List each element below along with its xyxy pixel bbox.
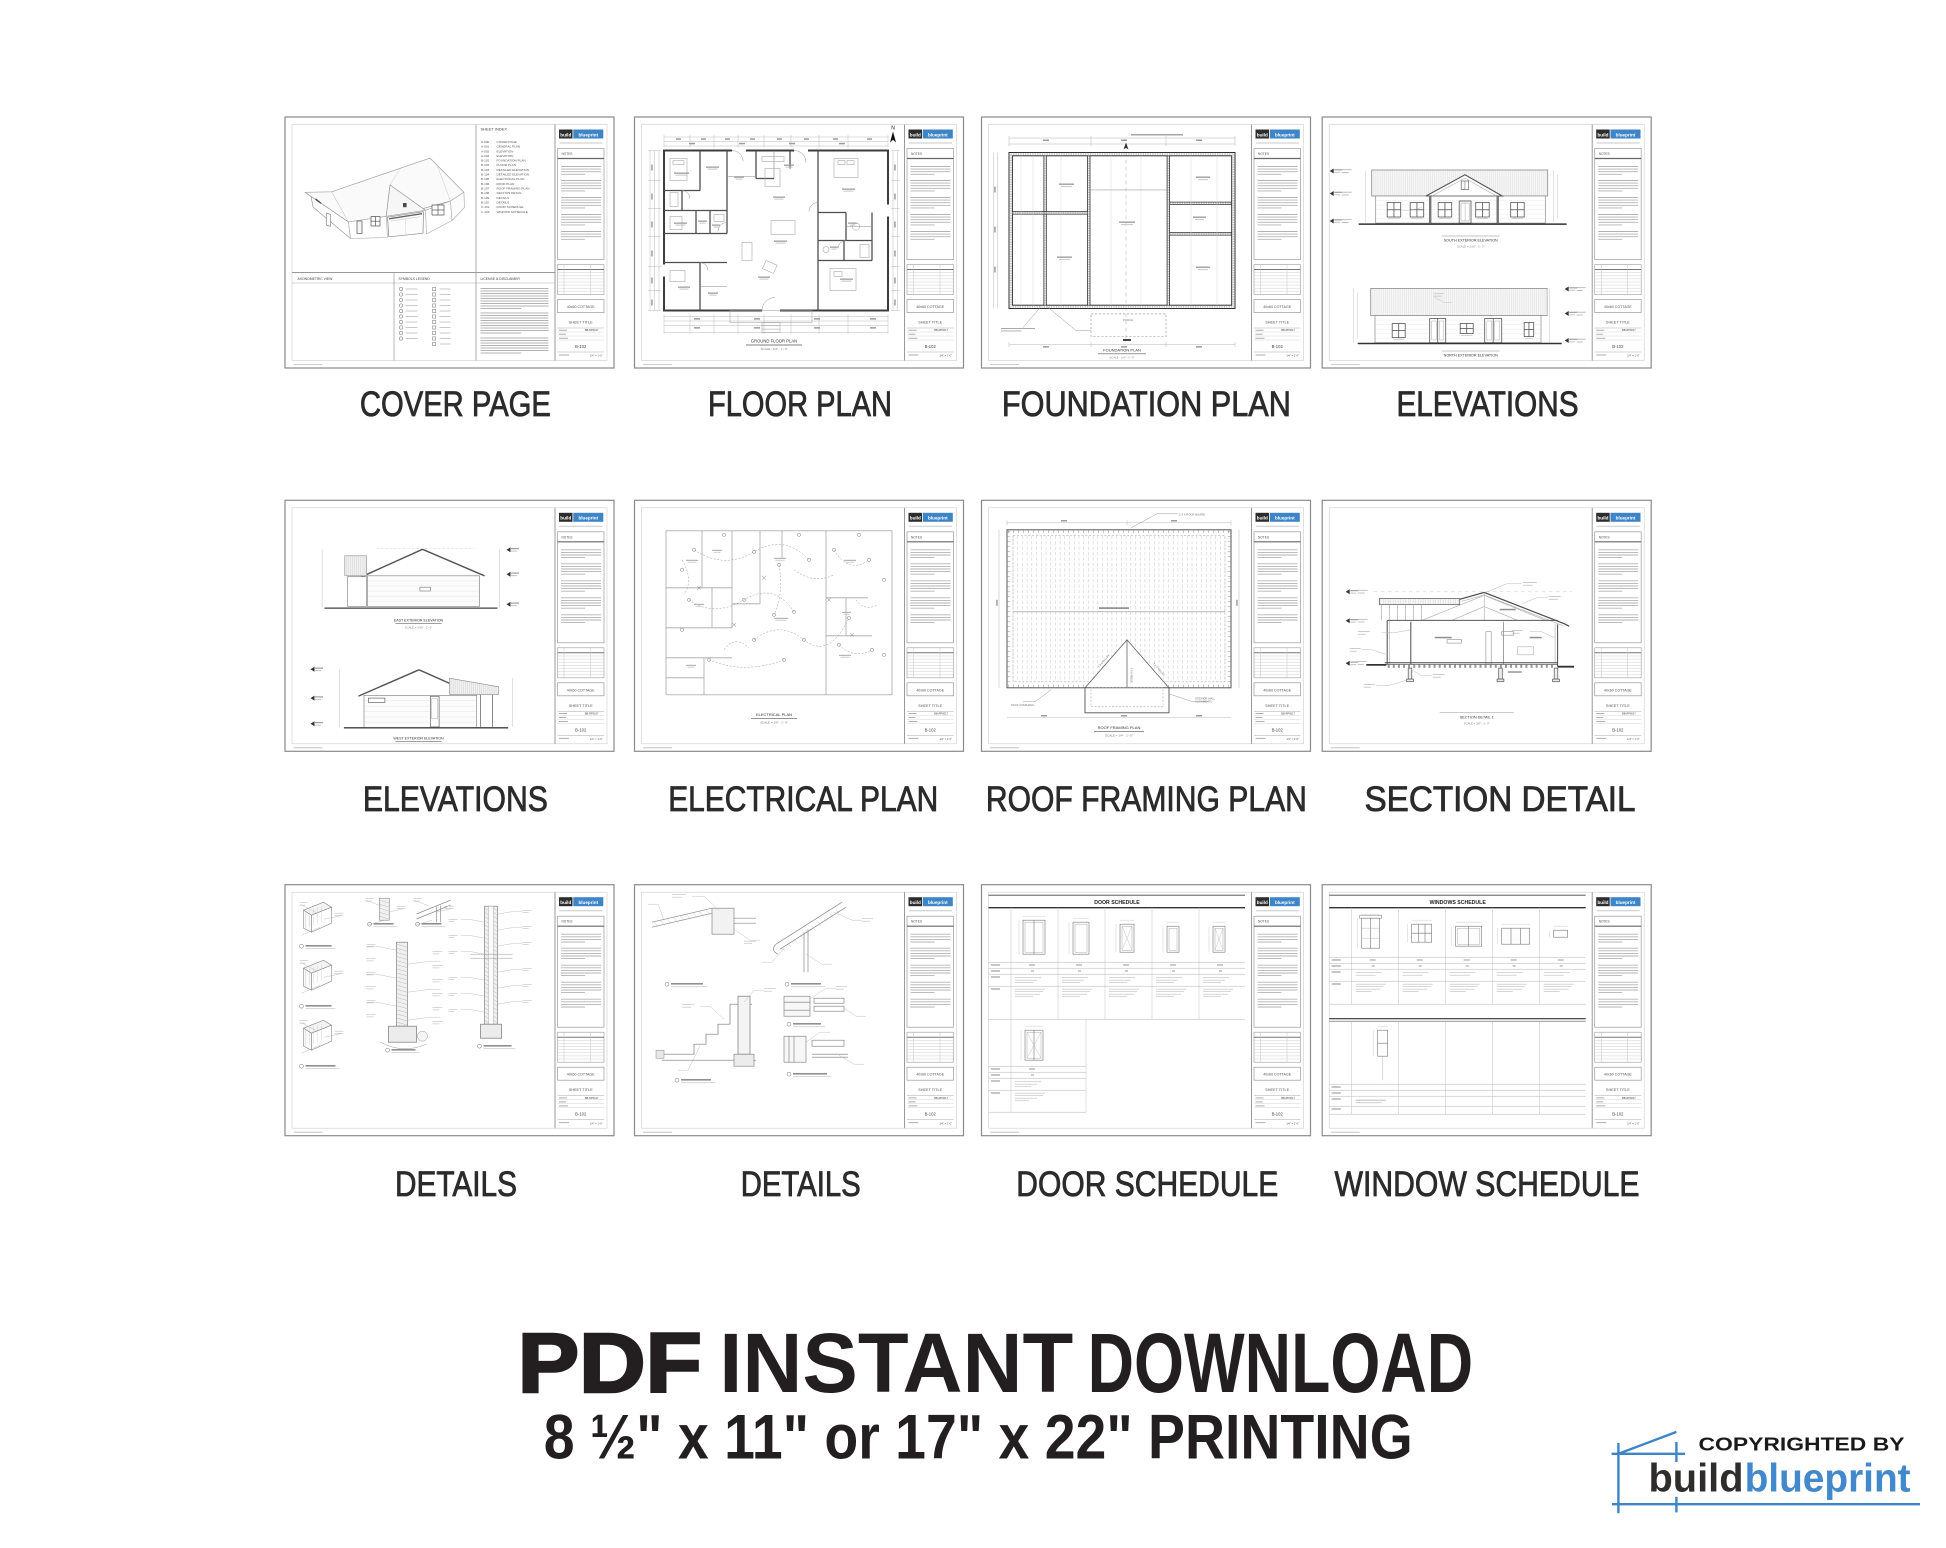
svg-text:DETAILED ELEVATION: DETAILED ELEVATION — [497, 173, 530, 177]
svg-text:SCALE = 3/16" : 1'- 0": SCALE = 3/16" : 1'- 0" — [1457, 245, 1484, 249]
svg-text:ELEVATION: ELEVATION — [497, 149, 514, 153]
svg-text:COVER PAGE: COVER PAGE — [360, 385, 551, 424]
svg-text:SCALE = 3/8" : 1'- 0": SCALE = 3/8" : 1'- 0" — [1464, 721, 1490, 725]
svg-text:DETAILS: DETAILS — [395, 1165, 517, 1204]
svg-text:ROOF FRAMING PLAN: ROOF FRAMING PLAN — [1098, 725, 1141, 730]
svg-text:DETAILS: DETAILS — [497, 196, 510, 200]
svg-text:FOUNDATION PLAN: FOUNDATION PLAN — [497, 159, 526, 163]
svg-text:B-109: B-109 — [481, 196, 490, 200]
svg-text:ELEVATIONS: ELEVATIONS — [1397, 385, 1579, 424]
svg-text:WINDOW SCHEDULE: WINDOW SCHEDULE — [497, 210, 528, 214]
svg-text:SOUTH EXTERIOR ELEVATION: SOUTH EXTERIOR ELEVATION — [1444, 239, 1498, 243]
svg-text:SECTION DETAIL: SECTION DETAIL — [1365, 780, 1636, 819]
svg-text:PDFINSTANTDOWNLOAD: PDFINSTANTDOWNLOAD — [518, 1316, 1473, 1410]
svg-text:WEST EXTERIOR ELEVATION: WEST EXTERIOR ELEVATION — [393, 736, 444, 740]
svg-text:GROUND FLOOR PLAN: GROUND FLOOR PLAN — [751, 339, 797, 344]
svg-text:DOOR SCHEDULE: DOOR SCHEDULE — [497, 205, 524, 209]
svg-text:A-003: A-003 — [481, 154, 490, 158]
svg-text:SCALE = 1/4" : 1'- 0": SCALE = 1/4" : 1'- 0" — [760, 720, 788, 724]
svg-text:ROOF PLAN: ROOF PLAN — [497, 182, 515, 186]
svg-text:ELECTRICAL PLAN: ELECTRICAL PLAN — [756, 712, 792, 717]
svg-text:WINDOWS SCHEDULE: WINDOWS SCHEDULE — [1430, 900, 1487, 906]
svg-text:SCALE = 1/4" : 1'- 0": SCALE = 1/4" : 1'- 0" — [1105, 733, 1133, 737]
svg-text:SECTION DETAIL: SECTION DETAIL — [497, 191, 522, 195]
svg-text:GENERAL PLAN: GENERAL PLAN — [497, 145, 521, 149]
svg-text:ELECTRICAL PLAN: ELECTRICAL PLAN — [668, 780, 938, 819]
svg-text:B-107: B-107 — [481, 187, 490, 191]
svg-text:B-110: B-110 — [481, 201, 489, 205]
svg-text:DOOR SCHEDULE: DOOR SCHEDULE — [1016, 1165, 1278, 1204]
svg-text:8 ½" x 11" or 17" x 22" PRINTI: 8 ½" x 11" or 17" x 22" PRINTING — [544, 1402, 1413, 1472]
svg-text:B-104: B-104 — [481, 173, 490, 177]
svg-text:ELECTRICAL PLAN: ELECTRICAL PLAN — [497, 177, 525, 181]
svg-text:B-108: B-108 — [481, 191, 490, 195]
svg-text:ELEVATION: ELEVATION — [497, 154, 514, 158]
svg-text:blueprint: blueprint — [1745, 1456, 1911, 1500]
svg-text:COPYRIGHTED BY: COPYRIGHTED BY — [1699, 1435, 1905, 1455]
svg-text:FOUNDATION PLAN: FOUNDATION PLAN — [1002, 385, 1291, 424]
svg-text:C-101: C-101 — [481, 205, 490, 209]
svg-text:SYMBOLS LEGEND: SYMBOLS LEGEND — [399, 277, 431, 281]
svg-text:A-000: A-000 — [481, 140, 490, 144]
svg-text:ROOF OVERHANG: ROOF OVERHANG — [1011, 703, 1034, 707]
svg-text:EAST EXTERIOR ELEVATION: EAST EXTERIOR ELEVATION — [394, 618, 444, 622]
svg-text:SCALE : 1/4" : 1'- 0": SCALE : 1/4" : 1'- 0" — [761, 347, 788, 351]
svg-text:DETAILED ELEVATION: DETAILED ELEVATION — [497, 168, 530, 172]
svg-text:AXONOMETRIC VIEW: AXONOMETRIC VIEW — [298, 277, 334, 281]
svg-text:2 X 6 ROOF BOARD: 2 X 6 ROOF BOARD — [1179, 512, 1205, 516]
svg-text:B-106: B-106 — [481, 182, 490, 186]
svg-text:NORTH EXTERIOR ELEVATION: NORTH EXTERIOR ELEVATION — [1444, 354, 1498, 358]
svg-text:2 X 6 RIDGE: 2 X 6 RIDGE — [1130, 668, 1134, 683]
svg-text:COVER PAGE: COVER PAGE — [497, 140, 517, 144]
svg-text:DETAILS: DETAILS — [741, 1165, 861, 1204]
svg-text:FOUNDATION PLAN: FOUNDATION PLAN — [1103, 348, 1141, 353]
svg-text:WINDOW SCHEDULE: WINDOW SCHEDULE — [1335, 1165, 1640, 1204]
svg-text:SHEET INDEX: SHEET INDEX — [481, 127, 508, 132]
svg-text:PORCH: PORCH — [1123, 318, 1133, 322]
svg-text:B-101: B-101 — [481, 159, 490, 163]
svg-text:B-103: B-103 — [481, 168, 490, 172]
svg-text:ELEVATIONS: ELEVATIONS — [363, 780, 548, 819]
svg-text:SECTION DETAIL 1: SECTION DETAIL 1 — [1460, 715, 1494, 719]
svg-text:A-001: A-001 — [481, 145, 490, 149]
svg-text:ROOF FRAMING PLAN: ROOF FRAMING PLAN — [497, 187, 530, 191]
svg-text:SCALE : 1/4" : 1'- 0": SCALE : 1/4" : 1'- 0" — [1109, 355, 1134, 359]
svg-text:DETAILS: DETAILS — [497, 201, 510, 205]
svg-text:B-102: B-102 — [481, 163, 490, 167]
svg-text:DOOR SCHEDULE: DOOR SCHEDULE — [1094, 900, 1140, 906]
svg-text:SCALE = 3/16" : 1'- 0": SCALE = 3/16" : 1'- 0" — [405, 625, 432, 629]
svg-text:FLOOR PLAN: FLOOR PLAN — [708, 385, 892, 424]
svg-text:LICENSE & DISCLAIMER: LICENSE & DISCLAIMER — [481, 277, 521, 281]
svg-text:FLOOR PLAN: FLOOR PLAN — [497, 163, 517, 167]
svg-text:ALIGNMENTS: ALIGNMENTS — [1195, 700, 1212, 704]
svg-text:B-105: B-105 — [481, 177, 490, 181]
svg-text:build: build — [1649, 1456, 1744, 1500]
svg-text:C-102: C-102 — [481, 210, 490, 214]
svg-text:ROOF FRAMING PLAN: ROOF FRAMING PLAN — [986, 780, 1307, 819]
svg-text:A-002: A-002 — [481, 149, 490, 153]
svg-text:N: N — [891, 126, 895, 132]
